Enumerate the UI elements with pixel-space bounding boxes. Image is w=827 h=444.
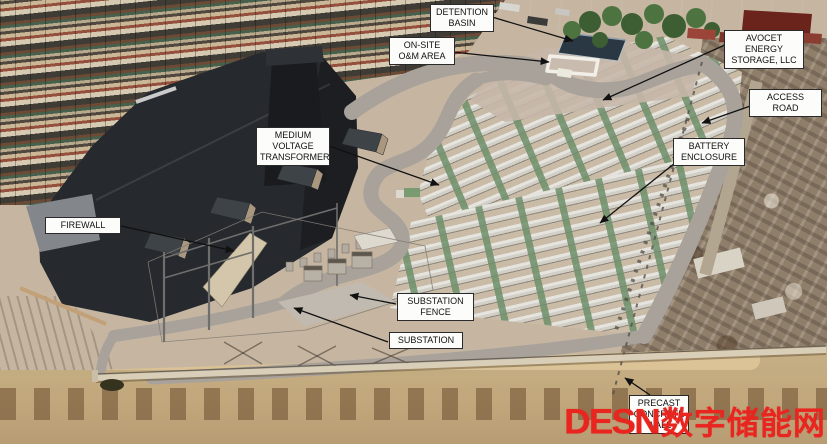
bush bbox=[100, 379, 124, 391]
site-rendering: DETENTION BASIN ON-SITE O&M AREA AVOCET … bbox=[0, 0, 827, 444]
arrow-precast-wall bbox=[625, 378, 650, 395]
label-onsite-om-area: ON-SITE O&M AREA bbox=[389, 37, 455, 65]
label-detention-basin: DETENTION BASIN bbox=[430, 4, 494, 32]
label-medium-voltage-transformer: MEDIUM VOLTAGE TRANSFORMER bbox=[256, 127, 330, 166]
label-avocet-energy-storage: AVOCET ENERGY STORAGE, LLC bbox=[724, 30, 804, 69]
arrow-battery-enclosure bbox=[600, 163, 675, 223]
vector-overlay bbox=[0, 0, 827, 444]
watermark: DESN 数字储能网 bbox=[564, 398, 826, 444]
label-battery-enclosure: BATTERY ENCLOSURE bbox=[673, 138, 745, 166]
green-unit bbox=[404, 188, 420, 197]
watermark-latin: DESN bbox=[564, 402, 659, 442]
label-firewall: FIREWALL bbox=[45, 217, 121, 234]
label-substation: SUBSTATION bbox=[389, 332, 463, 349]
label-access-road: ACCESS ROAD bbox=[749, 89, 822, 117]
watermark-cjk: 数字储能网 bbox=[661, 398, 826, 444]
label-substation-fence: SUBSTATION FENCE bbox=[397, 293, 474, 321]
